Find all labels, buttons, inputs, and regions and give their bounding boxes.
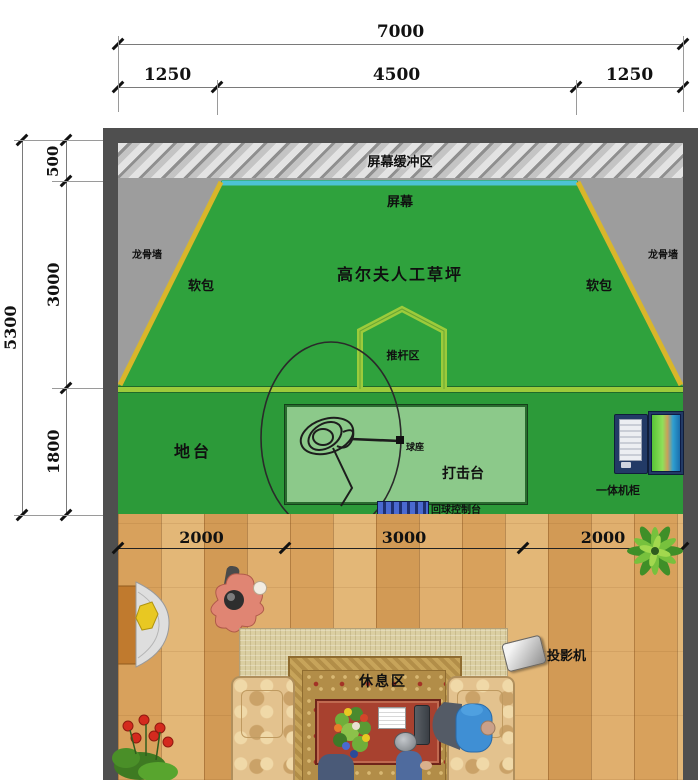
turf-label: 高尔夫人工草坪 [280, 261, 520, 285]
wall-top [103, 128, 698, 143]
person-bottom-jeans [396, 751, 422, 780]
projector-label: 投影机 [547, 645, 603, 664]
dim-floor-seg2: 3000 [285, 528, 523, 547]
dim-extension [217, 80, 218, 115]
dim-line-floor [118, 548, 683, 549]
person-bottom-hand [420, 761, 432, 770]
cabinet-screen [619, 419, 642, 461]
dim-left-seg3: 1800 [44, 388, 64, 515]
dim-extension [576, 80, 577, 115]
cabinet-label: 一体机柜 [580, 482, 656, 498]
cabinet-display [651, 414, 681, 472]
dim-top-total: 7000 [118, 22, 683, 42]
wall-left [103, 128, 118, 780]
ball-return-console [377, 501, 429, 515]
person-bottom-legs [318, 754, 354, 780]
keel-wall-label-right: 龙骨墙 [640, 246, 686, 261]
dim-top-seg3: 1250 [576, 65, 683, 85]
keel-wall-label-left: 龙骨墙 [124, 246, 170, 261]
floor-plan: 7000 1250 4500 1250 5300 500 3000 1800 屏… [0, 0, 698, 780]
golf-bag [118, 580, 174, 670]
dim-extension [118, 36, 119, 112]
hitting-platform-label: 打击台 [420, 463, 506, 483]
flower-pot [110, 710, 186, 780]
dim-top-seg2: 4500 [217, 65, 576, 85]
rest-area-label: 休息区 [337, 671, 429, 691]
plant [624, 520, 686, 582]
dim-extension [14, 140, 104, 141]
soft-pack-label-right: 软包 [576, 275, 622, 294]
dim-extension [683, 36, 684, 112]
cabinet-keyboard [621, 462, 631, 468]
sofa-left-cushion [241, 690, 283, 738]
book [378, 707, 406, 729]
screen-label: 屏幕 [330, 191, 470, 210]
dim-floor-seg1: 2000 [118, 528, 285, 547]
dim-top-seg1: 1250 [118, 65, 217, 85]
dim-line-left-total [22, 140, 23, 515]
ashtray [394, 732, 417, 752]
flower-bouquet [320, 700, 384, 762]
dim-line-top-segments [118, 87, 683, 88]
soft-pack-label-left: 软包 [178, 275, 224, 294]
dim-line-top-total [118, 44, 683, 45]
dim-left-seg1: 500 [44, 138, 64, 184]
screen-buffer-label: 屏幕缓冲区 [300, 151, 500, 170]
person-seated [430, 698, 496, 762]
platform-label: 地台 [158, 438, 228, 462]
wall-right [683, 128, 698, 780]
dim-left-seg2: 3000 [44, 181, 64, 388]
dim-left-total: 5300 [1, 140, 21, 515]
tee-label: 球座 [402, 440, 428, 453]
dim-line-left-segments [66, 140, 67, 515]
